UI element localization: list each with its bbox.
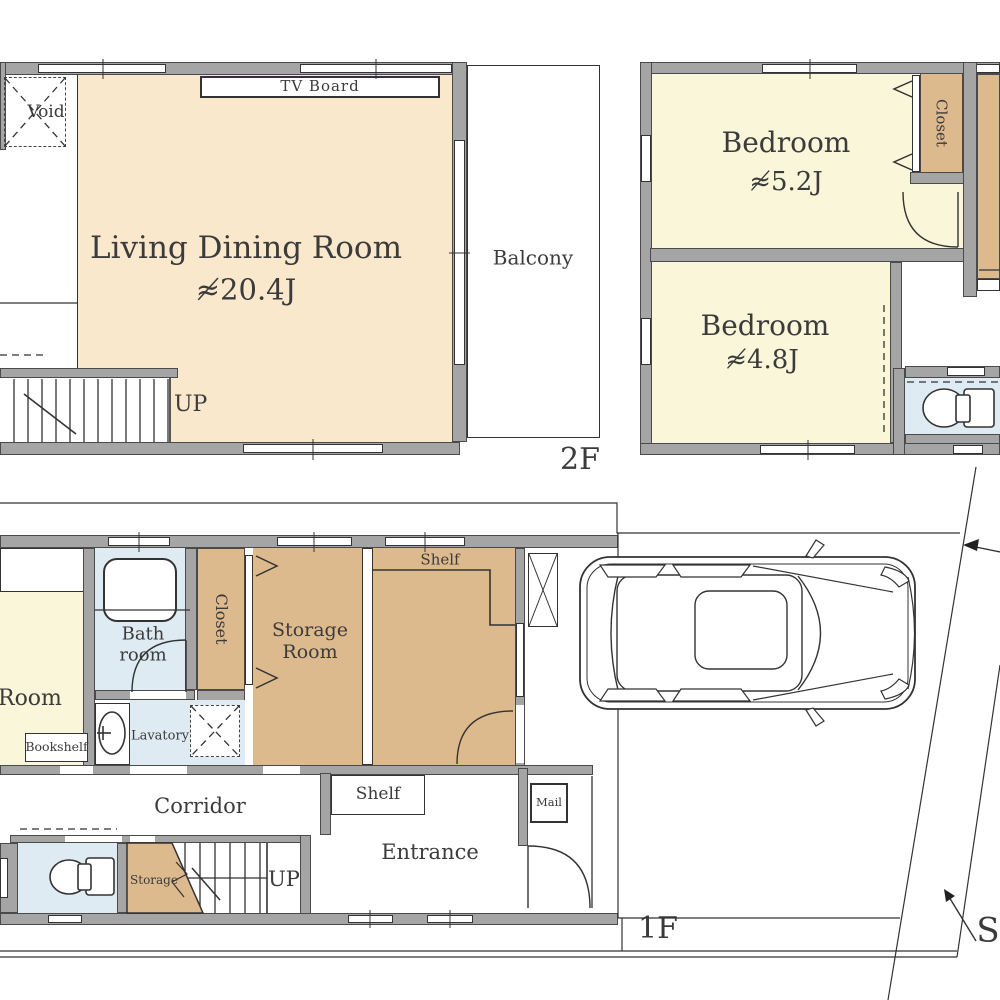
wall (117, 843, 128, 913)
bookshelf-label: Bookshelf (25, 740, 87, 754)
wall (300, 835, 311, 915)
storage-shelf-label: Shelf (420, 551, 459, 568)
living-room-area: ≉20.4J (196, 273, 297, 306)
corridor-label: Corridor (154, 794, 246, 818)
room-1f-closet (0, 548, 84, 592)
closet-1f-label: Closet (212, 593, 230, 644)
door-opening (130, 691, 186, 699)
wall (910, 172, 965, 184)
bedroom-4-8-label: Bedroom (701, 310, 830, 342)
bedroom-5-2-area: ≉5.2J (749, 168, 823, 198)
door-opening (65, 836, 122, 842)
closet-door-track (245, 555, 253, 685)
bookshelf: Bookshelf (25, 733, 88, 762)
bathtub (103, 558, 177, 622)
window (38, 64, 166, 73)
wall (0, 913, 618, 925)
closet-2f-label: Closet (932, 99, 949, 147)
floor2-label: 2F (560, 443, 600, 478)
wall (10, 835, 310, 843)
wall (893, 368, 905, 455)
entrance-shelf: Shelf (331, 775, 425, 815)
bedroom-4-8-area: ≉4.8J (725, 346, 799, 376)
window (977, 279, 1000, 291)
window (641, 318, 651, 365)
floor1-label: 1F (638, 912, 678, 947)
window (947, 367, 985, 376)
washing-machine-space (190, 705, 240, 757)
toilet-1f (18, 843, 118, 913)
door-opening (60, 766, 93, 774)
wall (650, 248, 965, 262)
window (385, 537, 465, 546)
mail-label: Mail (536, 796, 562, 809)
door-opening (130, 766, 187, 774)
car-icon (580, 540, 915, 726)
stairs-up-label-1f: UP (268, 867, 300, 891)
window (641, 135, 651, 182)
stairwell-floor (0, 378, 170, 442)
room-1f-label: Room (0, 686, 62, 711)
entrance-door (427, 915, 473, 923)
window (243, 444, 383, 453)
lavatory-label: Lavatory (131, 730, 189, 745)
door-opening (263, 766, 300, 774)
entrance-label: Entrance (381, 840, 479, 864)
wall (905, 434, 1000, 444)
window (760, 445, 855, 454)
door-opening (130, 836, 155, 842)
wall (0, 368, 178, 378)
window (953, 445, 983, 454)
wall (185, 548, 197, 690)
stairs-storage-label: Storage (130, 874, 178, 888)
storage-room-label: Storage Room (272, 620, 348, 664)
stairs-up-label-2f: UP (174, 392, 207, 417)
wall (320, 773, 331, 835)
stair-landing-strip (977, 74, 1000, 279)
floor-plan-canvas: TV Board Balcony Void Living Dining Room… (0, 0, 1000, 1000)
partition (362, 548, 373, 765)
balcony-sliding-door (454, 140, 465, 365)
entrance-shelf-label: Shelf (356, 785, 400, 805)
wall (0, 442, 460, 455)
window (300, 64, 452, 73)
tv-board: TV Board (200, 76, 440, 98)
wall (518, 768, 528, 846)
balcony-label: Balcony (493, 247, 573, 270)
window (516, 623, 524, 697)
window (48, 915, 82, 923)
boundary-arrows (944, 539, 1000, 941)
entrance-door (348, 915, 393, 923)
window (108, 537, 170, 546)
window (762, 64, 857, 73)
closet-door-track (912, 75, 920, 172)
stairs-1f (172, 843, 267, 913)
mail-box: Mail (530, 783, 568, 823)
bedroom-5-2-label: Bedroom (722, 127, 851, 159)
storage-room-2 (373, 548, 515, 765)
door-opening (516, 705, 524, 763)
bathroom-label: Bath room (119, 624, 166, 665)
tv-board-label: TV Board (280, 78, 359, 95)
pillar-marker (528, 553, 558, 627)
wall (963, 62, 977, 297)
window (0, 858, 8, 898)
void-label: Void (27, 103, 64, 123)
window (277, 537, 352, 546)
window (975, 64, 1000, 73)
living-room-label: Living Dining Room (90, 231, 402, 267)
sink-counter (95, 703, 130, 765)
toilet-2f (905, 378, 1000, 434)
south-marker-label: S (976, 911, 999, 950)
